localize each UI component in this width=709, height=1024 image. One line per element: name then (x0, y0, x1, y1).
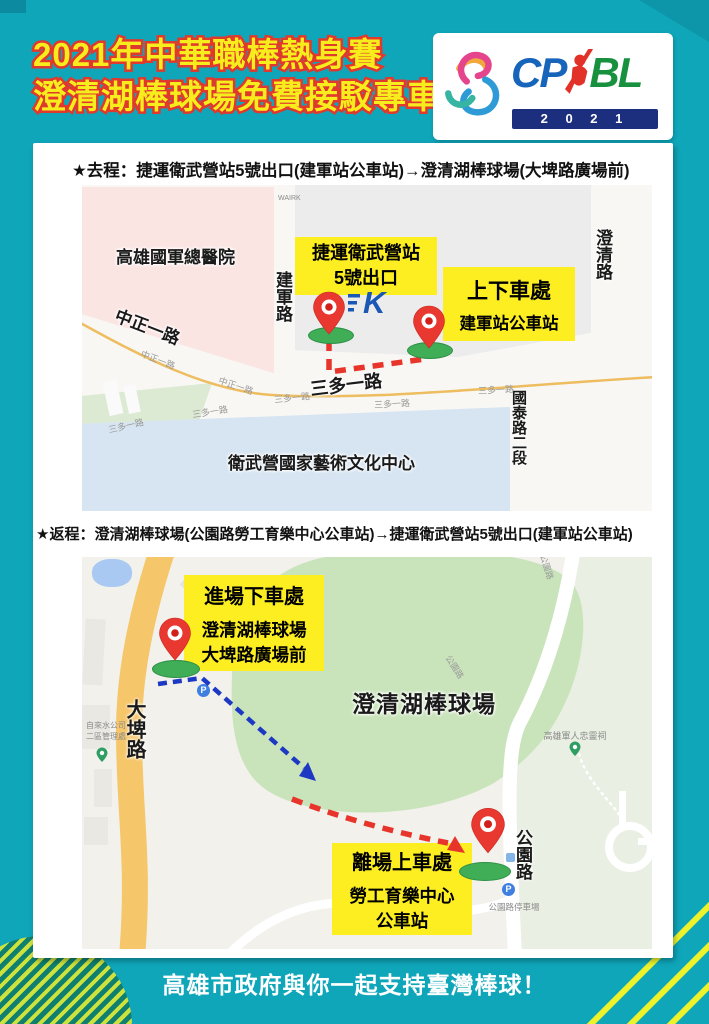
corner-accent (0, 0, 26, 13)
cpbl-wordmark: CP BL (511, 49, 641, 105)
shuttle-route-dashed-red (82, 185, 652, 511)
cpbl-year-badge: 2 0 2 1 (512, 109, 658, 129)
footer-slogan: 高雄市政府與你一起支持臺灣棒球！ (0, 966, 709, 1000)
map-pin-icon (470, 807, 506, 854)
shuttle-route-dashed-red (82, 557, 652, 949)
outbound-map: 高雄國軍總醫院 建軍路 WAIRK 澄清路 國泰路二段 中正一路 中正一路 中正… (82, 185, 652, 511)
return-map: 自來水公司 二區管理處 P 澄清湖棒球場 大埤路 公園路 公園路 高雄軍人忠靈祠… (82, 557, 652, 949)
poster-title-line2: 澄清湖棒球場免費接駁專車 (33, 76, 441, 118)
poster: 2021年中華職棒熱身賽 澄清湖棒球場免費接駁專車 CP BL 2 0 2 1 … (0, 0, 709, 1024)
stop-base-ellipse (152, 660, 200, 678)
outbound-route-header: ★去程：捷運衛武營站5號出口(建軍站公車站)→澄清湖棒球場(大埤路廣場前) (72, 157, 629, 181)
map-pin-icon (158, 617, 192, 661)
map-pin-icon (312, 291, 346, 335)
poster-title-line1: 2021年中華職棒熱身賽 (33, 34, 441, 76)
return-route-header: ★返程：澄清湖棒球場(公園路勞工育樂中心公車站)→捷運衛武營站5號出口(建軍站公… (36, 523, 633, 544)
cpbl-bl-text: BL (589, 49, 641, 97)
poster-title: 2021年中華職棒熱身賽 澄清湖棒球場免費接駁專車 (33, 34, 441, 118)
map-pin-icon (412, 305, 446, 349)
content-card: ★去程：捷運衛武營站5號出口(建軍站公車站)→澄清湖棒球場(大埤路廣場前) 高雄… (33, 143, 673, 958)
cpbl-logo-card: CP BL 2 0 2 1 (433, 33, 673, 140)
cpbl-cp-text: CP (511, 49, 565, 97)
kaohsiung-ribbon-logo-icon (439, 39, 513, 135)
stop-base-ellipse (459, 862, 511, 881)
